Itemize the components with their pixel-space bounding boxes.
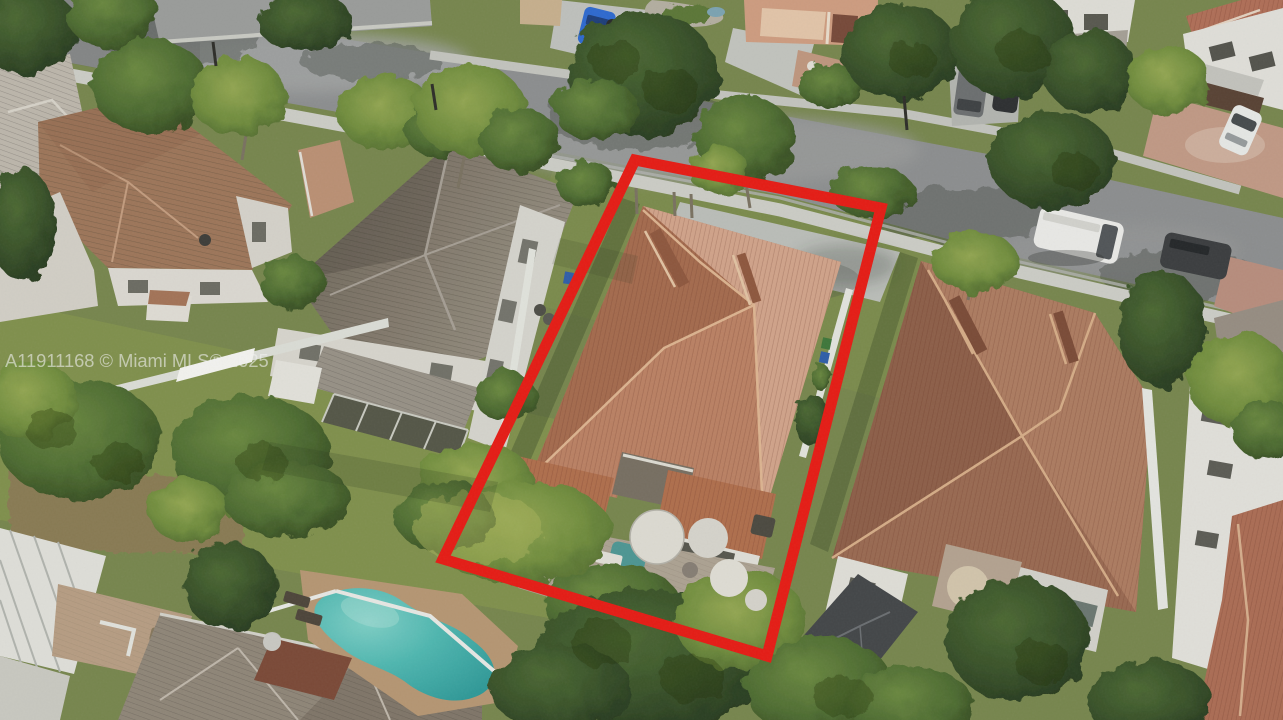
svg-text:A11911168 © Miami MLS® 2025: A11911168 © Miami MLS® 2025	[5, 350, 269, 371]
